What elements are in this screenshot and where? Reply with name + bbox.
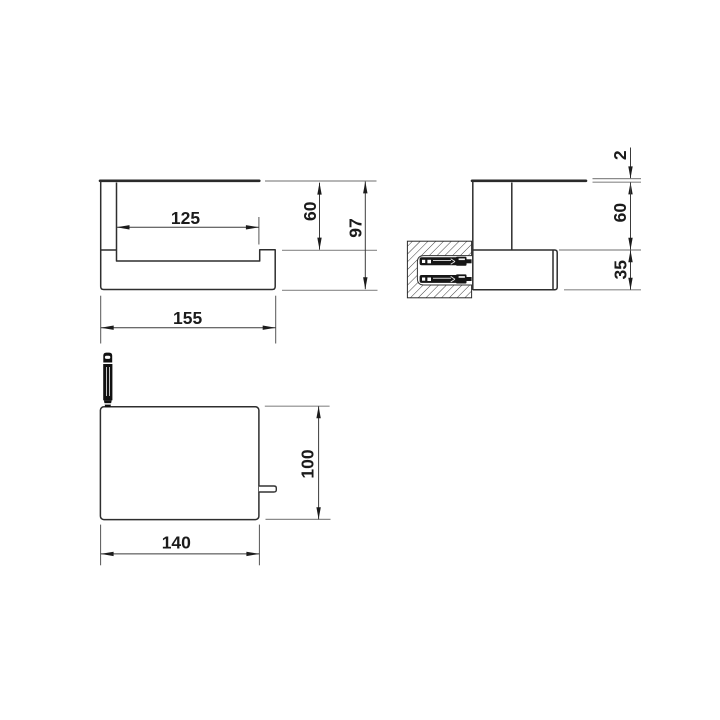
svg-text:60: 60 xyxy=(300,201,320,221)
svg-text:155: 155 xyxy=(173,308,202,328)
svg-text:125: 125 xyxy=(171,208,200,228)
svg-text:97: 97 xyxy=(345,218,365,237)
svg-text:35: 35 xyxy=(611,260,631,280)
svg-text:60: 60 xyxy=(610,203,630,223)
svg-text:140: 140 xyxy=(162,533,191,553)
svg-text:2: 2 xyxy=(610,150,630,160)
svg-text:100: 100 xyxy=(297,449,317,478)
